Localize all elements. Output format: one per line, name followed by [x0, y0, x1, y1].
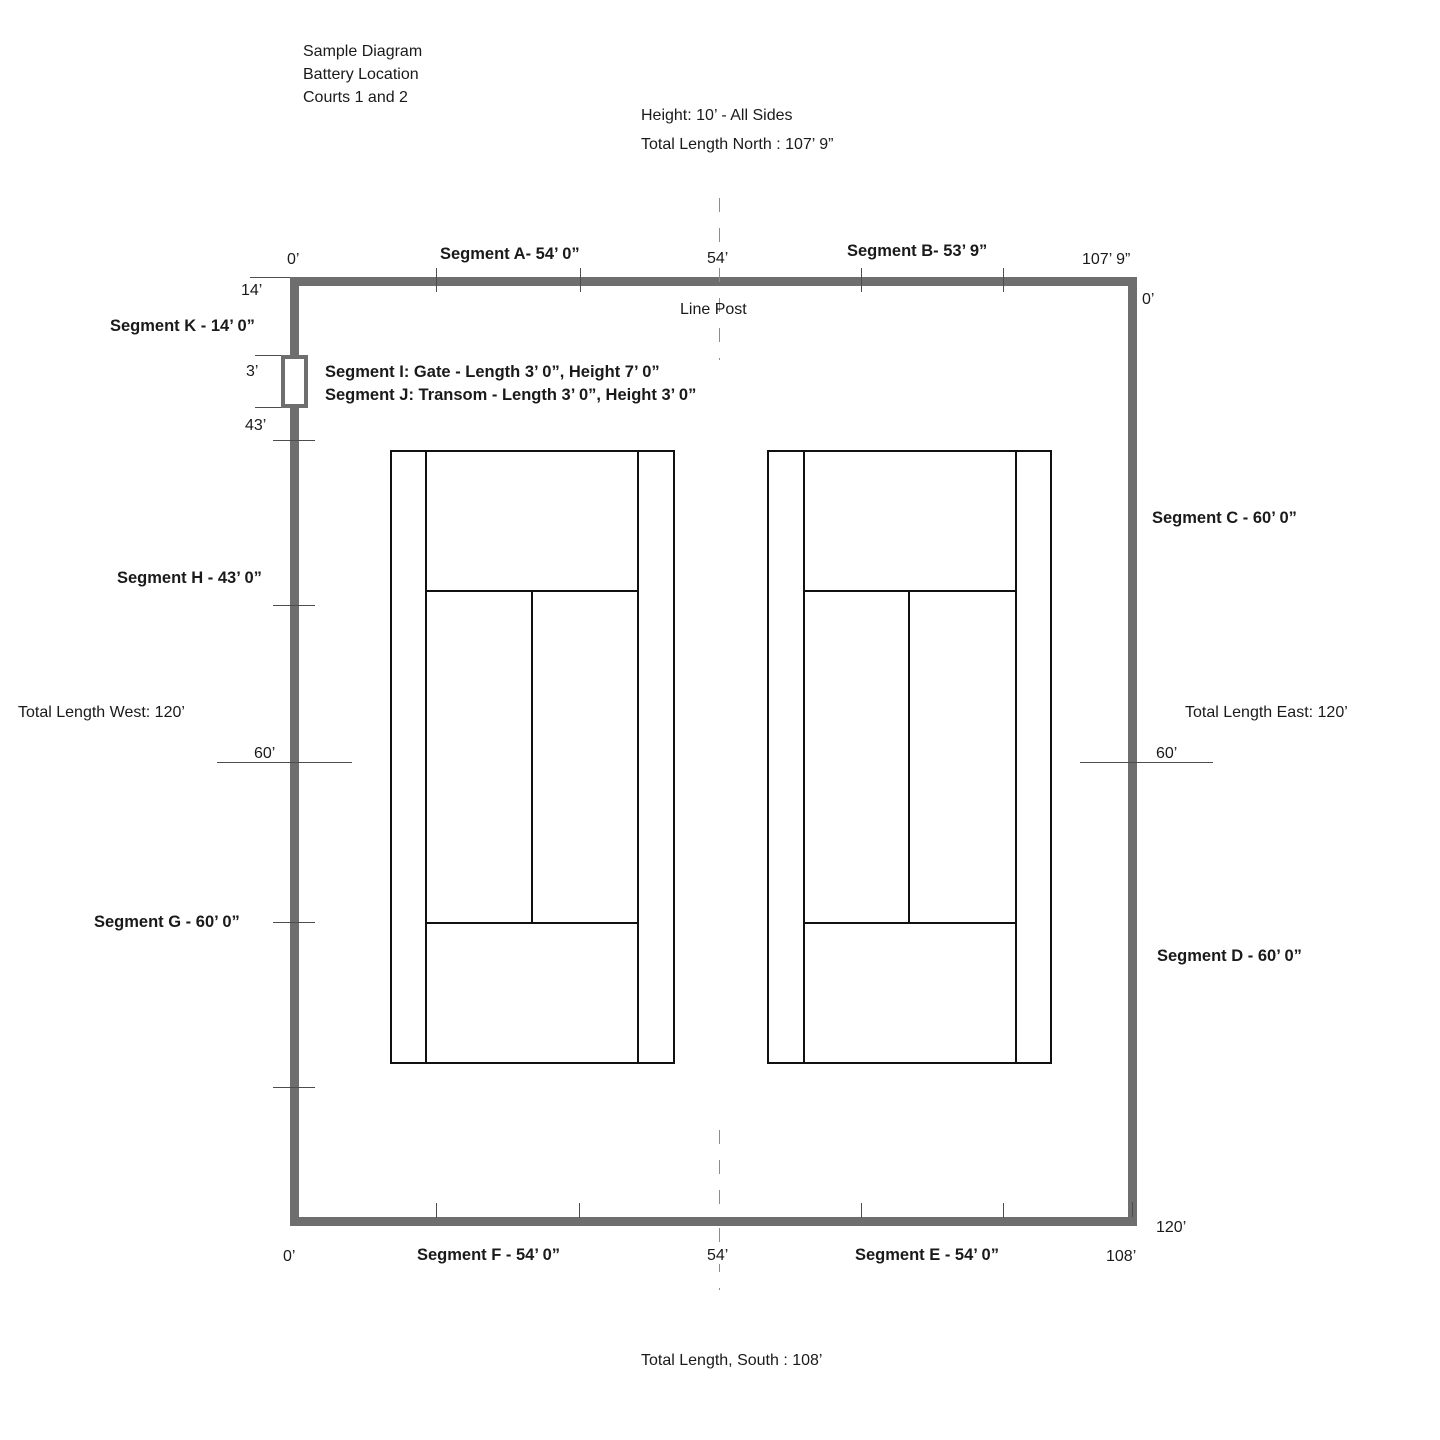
north-corner-left-label: 14’ — [241, 282, 262, 299]
post-tick — [861, 1203, 862, 1218]
segment-h-label: Segment H - 43’ 0” — [117, 570, 262, 587]
south-scale-start: 0’ — [283, 1248, 295, 1265]
total-length-east: Total Length East: 120’ — [1185, 704, 1348, 721]
west-post-tick — [273, 605, 315, 606]
gate-rect — [281, 355, 308, 408]
post-tick — [579, 1203, 580, 1218]
segment-f-label: Segment F - 54’ 0” — [417, 1247, 560, 1264]
court-2-singles-sideline-left — [803, 452, 805, 1062]
total-length-north: Total Length North : 107’ 9” — [641, 136, 833, 153]
court-1-singles-sideline-right — [637, 452, 639, 1062]
west-tick-60 — [217, 762, 352, 763]
line-post-dashed-line-lower — [719, 1130, 720, 1218]
court-2-center-service-line — [908, 590, 910, 924]
court-2-service-line-top — [803, 590, 1017, 592]
court-1-center-service-line — [531, 590, 533, 924]
segment-d-label: Segment D - 60’ 0” — [1157, 948, 1302, 965]
diagram-title-line-2: Battery Location — [303, 63, 419, 86]
gate-top-tick — [255, 355, 282, 356]
court-1 — [390, 450, 675, 1064]
west-tick-60-label: 60’ — [251, 745, 278, 762]
post-tick — [1003, 268, 1004, 292]
gate-bottom-tick — [255, 407, 282, 408]
diagram-title-line-1: Sample Diagram — [303, 40, 422, 63]
segment-g-label: Segment G - 60’ 0” — [94, 914, 240, 931]
west-post-tick — [273, 1087, 315, 1088]
post-tick — [861, 268, 862, 292]
court-1-singles-sideline-left — [425, 452, 427, 1062]
post-tick — [1003, 1203, 1004, 1218]
segment-c-label: Segment C - 60’ 0” — [1152, 510, 1297, 527]
court-2 — [767, 450, 1052, 1064]
north-corner-right-label: 0’ — [1142, 291, 1154, 308]
segment-b-label: Segment B- 53’ 9” — [847, 243, 987, 260]
total-length-west: Total Length West: 120’ — [18, 704, 185, 721]
segment-k-label: Segment K - 14’ 0” — [110, 318, 255, 335]
line-post-dashed-line-top — [719, 198, 720, 246]
north-scale-start: 0’ — [287, 251, 299, 268]
battery-location-diagram: Sample Diagram Battery Location Courts 1… — [0, 0, 1440, 1440]
segment-e-label: Segment E - 54’ 0” — [855, 1247, 999, 1264]
west-tick-43-label: 43’ — [245, 417, 266, 434]
west-tick-43 — [273, 440, 315, 441]
transom-segment-j-label: Segment J: Transom - Length 3’ 0”, Heigh… — [325, 387, 696, 404]
post-tick — [580, 268, 581, 292]
east-tick-60 — [1080, 762, 1213, 763]
corner-120-tick — [1132, 1202, 1133, 1217]
height-note: Height: 10’ - All Sides — [641, 107, 792, 124]
post-tick — [436, 268, 437, 292]
court-2-service-line-bottom — [803, 922, 1017, 924]
line-post-label: Line Post — [680, 301, 747, 318]
north-scale-mid: 54’ — [704, 250, 731, 267]
diagram-title-line-3: Courts 1 and 2 — [303, 86, 408, 109]
east-tick-60-label: 60’ — [1153, 745, 1180, 762]
gate-segment-i-label: Segment I: Gate - Length 3’ 0”, Height 7… — [325, 364, 660, 381]
segment-a-label: Segment A- 54’ 0” — [440, 246, 580, 263]
total-length-south: Total Length, South : 108’ — [641, 1352, 822, 1369]
post-tick — [436, 1203, 437, 1218]
west-post-tick — [273, 922, 315, 923]
east-tick-120-label: 120’ — [1156, 1219, 1186, 1236]
south-scale-mid: 54’ — [704, 1247, 731, 1264]
court-2-singles-sideline-right — [1015, 452, 1017, 1062]
west-tick-3-label: 3’ — [246, 363, 258, 380]
south-scale-end: 108’ — [1106, 1248, 1136, 1265]
north-scale-end: 107’ 9” — [1082, 251, 1130, 268]
west-tick-0 — [250, 277, 290, 278]
